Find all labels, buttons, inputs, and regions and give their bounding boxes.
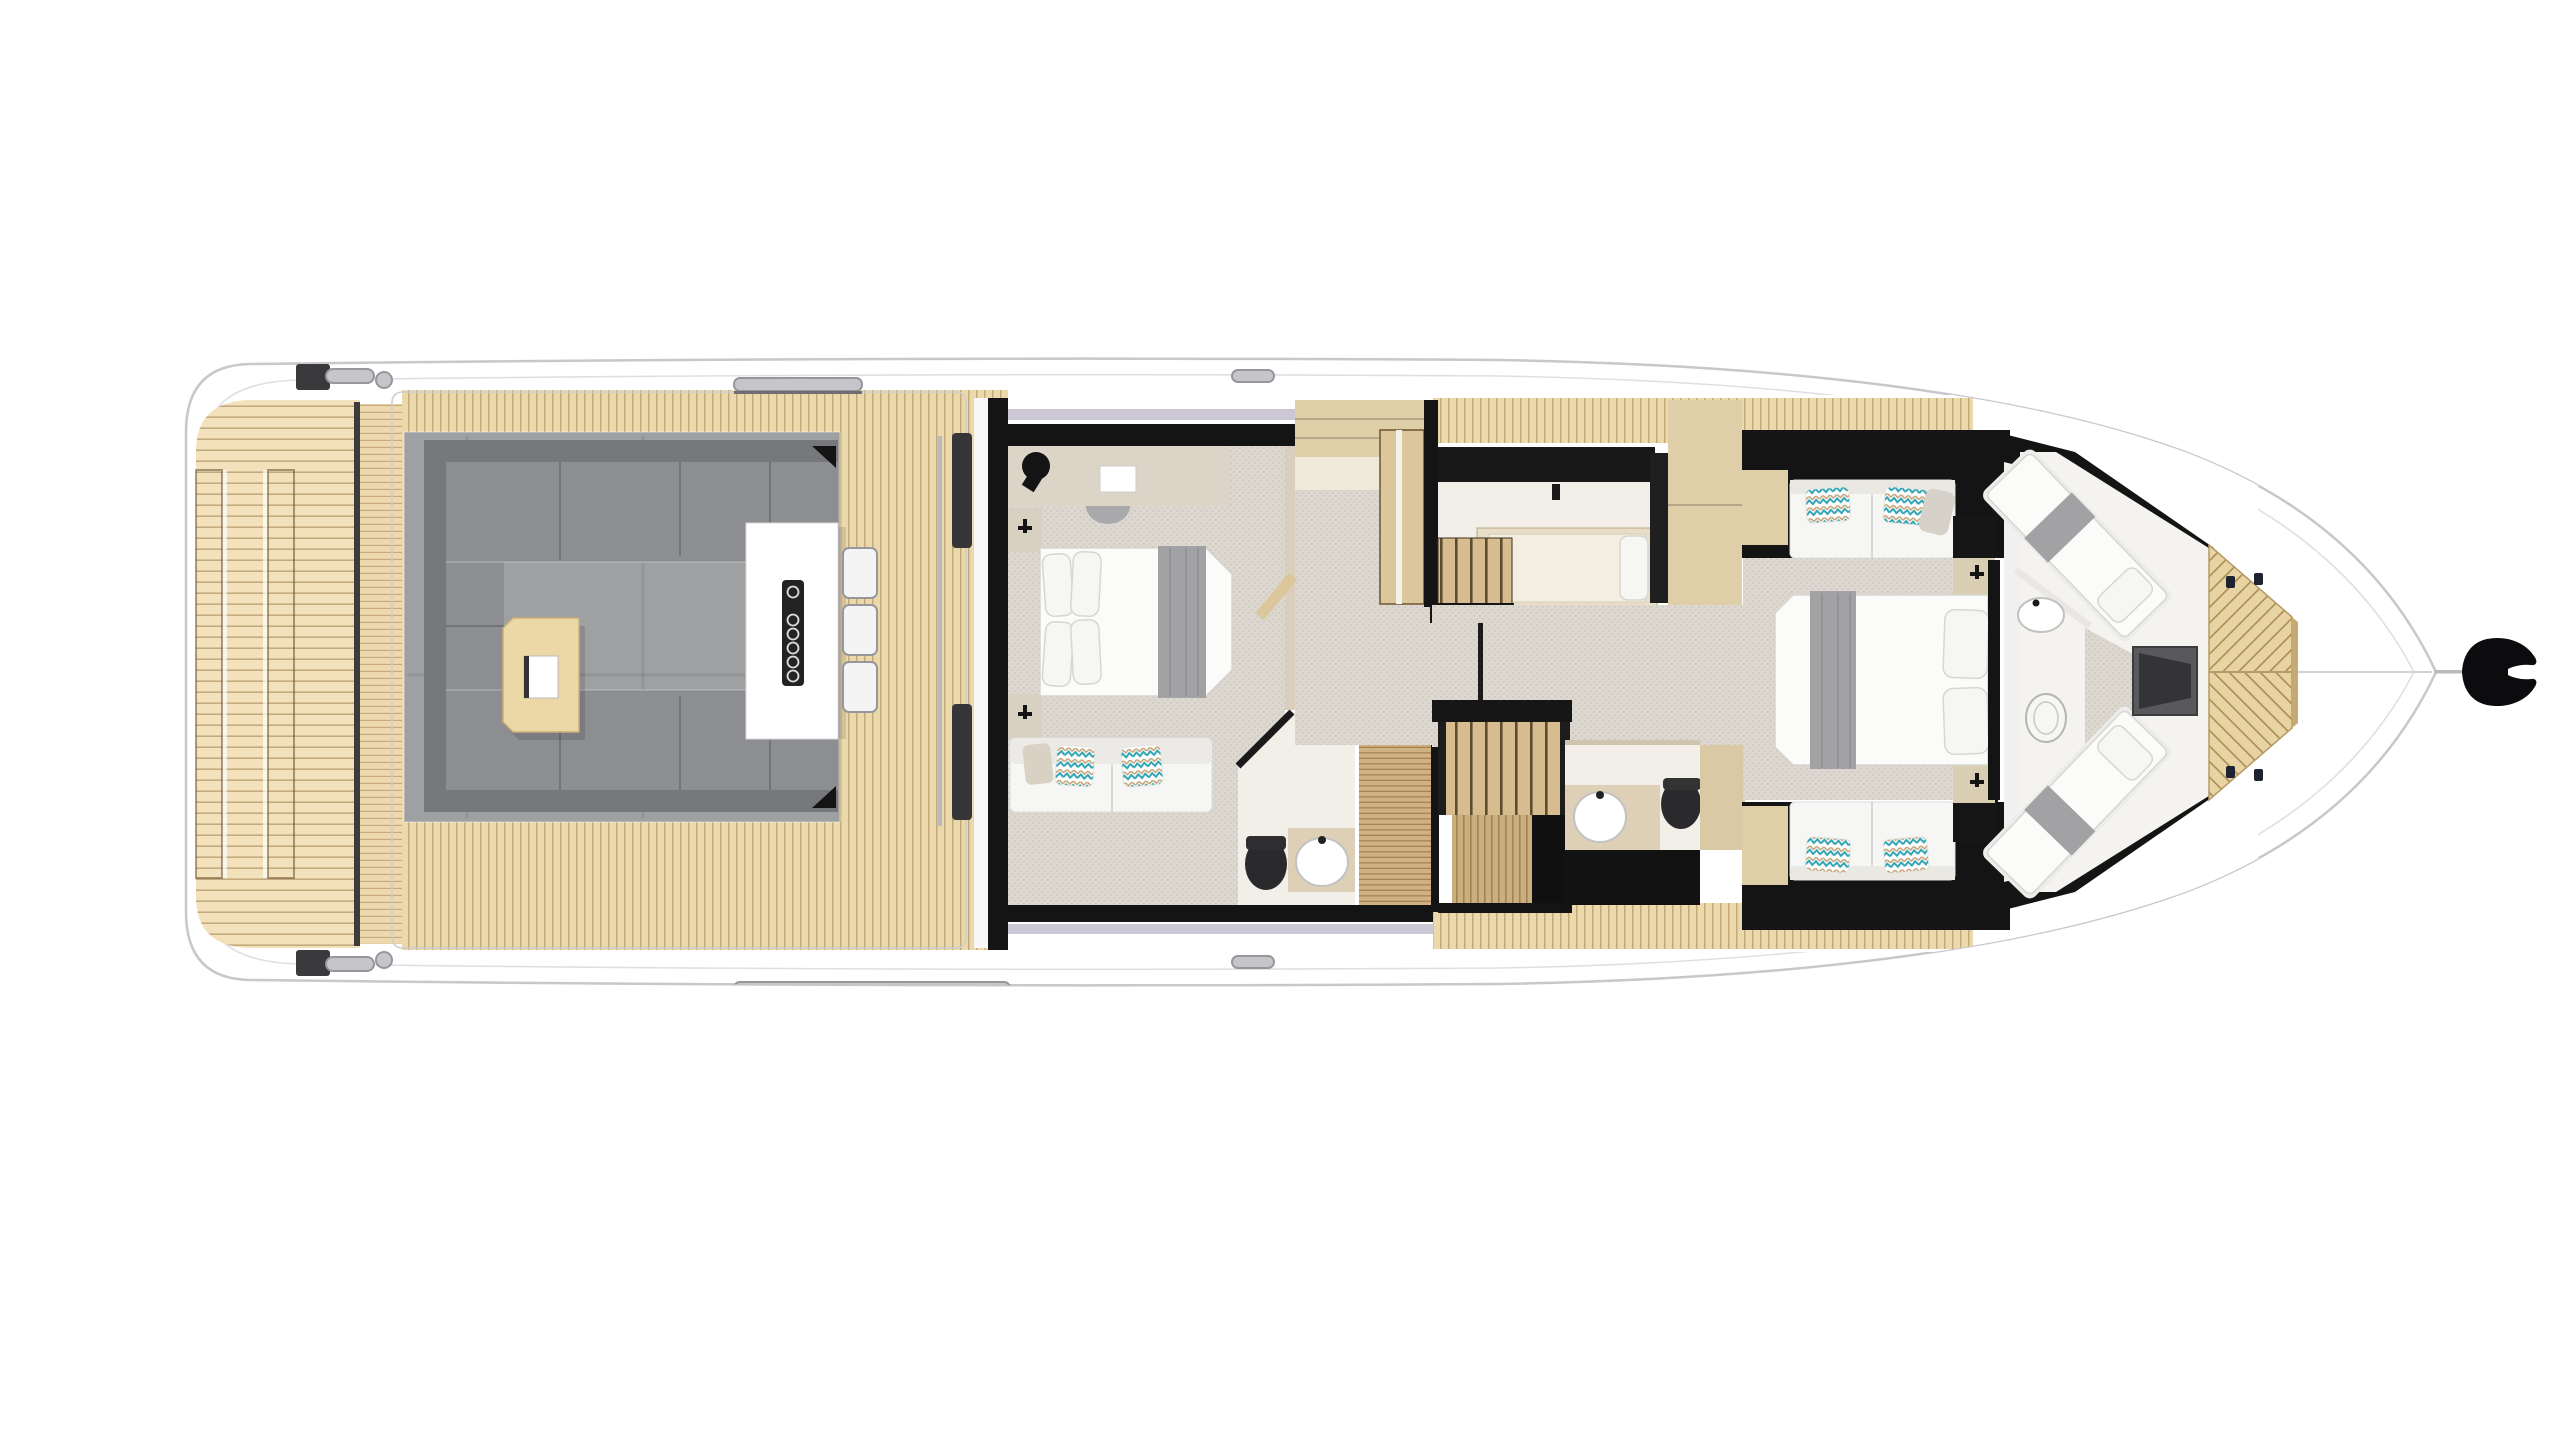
side-cleat — [1232, 956, 1274, 968]
headboard-wall — [1438, 447, 1655, 482]
pillow — [1042, 621, 1074, 687]
wall — [1424, 400, 1438, 607]
toilet — [2026, 694, 2066, 742]
serving-tray — [524, 656, 558, 698]
sink — [1574, 792, 1626, 842]
cabinet — [1700, 745, 1745, 850]
wardrobe-cabinet — [1668, 400, 1742, 605]
yacht-floor-plan — [0, 0, 2560, 1440]
pillow — [1943, 609, 1989, 678]
wet-bar — [746, 523, 846, 739]
side-cleat — [1232, 370, 1274, 382]
chevron-pillow — [1055, 745, 1096, 788]
wardrobe-cabinet — [1742, 806, 1788, 885]
lower-stair-flight — [1452, 815, 1532, 903]
cockpit-lounge — [404, 432, 877, 822]
master-sofa — [1010, 738, 1212, 812]
door-handle — [952, 433, 972, 548]
deck-hatch — [2133, 647, 2197, 715]
transom-step — [360, 404, 402, 944]
chevron-pillow — [1805, 487, 1851, 524]
vanity-tray — [1100, 466, 1136, 492]
pillow — [1620, 536, 1648, 600]
floor-plan-canvas — [0, 0, 2560, 1440]
vip-sofa-port — [1790, 480, 1957, 558]
pillow — [1070, 619, 1101, 684]
throw-pillow — [1022, 743, 1054, 786]
headboard — [1988, 560, 2000, 800]
wardrobe-cabinet — [1742, 470, 1788, 545]
door-track-line — [938, 436, 942, 826]
aft-bulkhead — [988, 398, 1008, 950]
bed-runner — [1810, 591, 1856, 769]
pillow — [1070, 551, 1101, 616]
faucet — [1596, 791, 1604, 799]
coffee-table — [503, 618, 585, 740]
bar-stools — [843, 548, 877, 712]
vip-cabin — [1742, 430, 2020, 930]
transom-seam — [354, 402, 360, 946]
faucet — [2033, 600, 2040, 607]
anchor-icon — [2462, 638, 2536, 706]
swim-platform — [196, 400, 402, 948]
sink — [2018, 598, 2064, 632]
pillow — [1943, 687, 1989, 754]
anchor-assembly — [2434, 638, 2536, 706]
chevron-pillow — [1805, 837, 1851, 874]
sink — [1296, 838, 1348, 886]
anchor-line — [2434, 670, 2466, 674]
chevron-pillow — [1883, 836, 1930, 874]
vip-bed — [1775, 560, 2000, 800]
door-handle — [952, 704, 972, 820]
deck-edge-strip — [2292, 617, 2298, 728]
stairs-down — [1432, 700, 1572, 913]
faucet — [1318, 836, 1326, 844]
window-frame-strip — [1008, 924, 1438, 934]
master-bed — [1040, 546, 1232, 698]
vip-sofa-starboard — [1790, 802, 1955, 880]
pillow — [1042, 553, 1074, 617]
chevron-pillow — [1120, 744, 1163, 787]
bed-runner — [1158, 546, 1206, 698]
